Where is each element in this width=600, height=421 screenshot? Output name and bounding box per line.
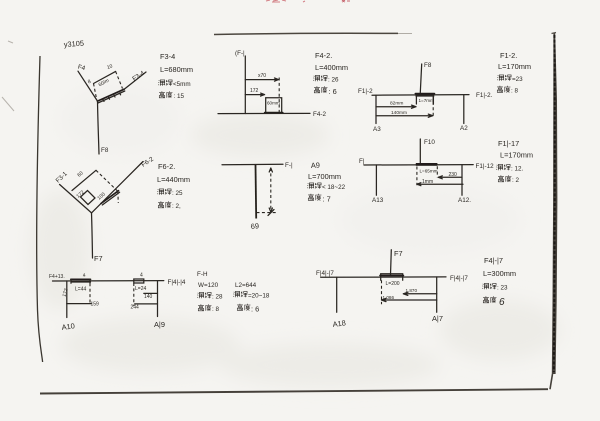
svg-text:A9: A9 [311, 161, 321, 170]
svg-text:F4+13.: F4+13. [49, 274, 65, 280]
svg-text:L=24: L=24 [135, 286, 146, 292]
svg-text:F1|-17: F1|-17 [498, 139, 519, 148]
svg-text:F|4|-|7: F|4|-|7 [316, 270, 334, 277]
svg-text:: 12.: : 12. [511, 166, 524, 173]
svg-text:F-|: F-| [285, 162, 293, 169]
svg-text:F|4|-|4: F|4|-|4 [168, 279, 186, 286]
svg-text:: 6: : 6 [329, 87, 337, 96]
svg-text:A2: A2 [460, 125, 468, 132]
svg-text:L=440mm: L=440mm [157, 175, 190, 184]
svg-text:F7: F7 [394, 249, 403, 258]
svg-text:: 25: : 25 [172, 190, 183, 197]
svg-text:: 15: : 15 [174, 93, 185, 100]
svg-text:F8: F8 [424, 62, 432, 69]
svg-text:L=170mm: L=170mm [498, 62, 531, 71]
svg-text:: 2: : 2 [512, 177, 519, 184]
svg-text:: 2,: : 2, [172, 203, 181, 210]
svg-text:140mm: 140mm [391, 110, 407, 116]
svg-text:L=400mm: L=400mm [315, 63, 348, 72]
svg-text:A18: A18 [332, 318, 346, 329]
svg-text:60mm: 60mm [267, 101, 280, 106]
svg-text:159: 159 [91, 302, 100, 308]
svg-text:F|: F| [359, 158, 365, 165]
svg-text:F-H: F-H [197, 271, 208, 278]
svg-text:1,086: 1,086 [383, 295, 395, 300]
svg-text:A10: A10 [61, 321, 75, 332]
svg-text:L=170mm: L=170mm [500, 151, 533, 160]
svg-text:69: 69 [250, 221, 259, 231]
svg-text:1mm: 1mm [422, 179, 433, 185]
svg-text:: 7: : 7 [323, 195, 331, 204]
svg-text:A12.: A12. [458, 197, 471, 204]
svg-text:y3105: y3105 [64, 39, 85, 49]
svg-text:F4-2: F4-2 [313, 111, 326, 118]
svg-text:L=300mm: L=300mm [483, 269, 516, 278]
svg-text:=23: =23 [512, 76, 523, 83]
svg-text:A3: A3 [373, 126, 381, 133]
svg-text:< 18~22: < 18~22 [322, 184, 346, 191]
svg-text:F1|-2.: F1|-2. [476, 92, 493, 99]
svg-text:F6-2.: F6-2. [158, 162, 175, 171]
svg-text:1=7mm: 1=7mm [419, 98, 435, 103]
svg-text:A|7: A|7 [432, 314, 443, 323]
svg-text:: 8: : 8 [511, 88, 518, 95]
svg-text:F|4|-|7: F|4|-|7 [450, 275, 468, 282]
svg-text:244: 244 [131, 305, 140, 311]
svg-text:140: 140 [144, 294, 153, 300]
svg-text:W=120: W=120 [198, 282, 219, 289]
svg-text:L=680mm: L=680mm [160, 65, 193, 74]
svg-text:F1|-12: F1|-12 [476, 163, 495, 170]
svg-text:(F-|: (F-| [235, 50, 245, 57]
svg-text:F10: F10 [424, 139, 435, 146]
svg-text:x70: x70 [258, 73, 266, 79]
svg-text:230: 230 [449, 172, 458, 178]
svg-text:L2=644: L2=644 [235, 282, 257, 289]
svg-text:F8: F8 [101, 147, 109, 154]
svg-text:L=200: L=200 [386, 281, 400, 287]
svg-text:1,870: 1,870 [406, 288, 418, 293]
svg-text:: 6: : 6 [251, 305, 259, 314]
svg-text:A|9: A|9 [154, 320, 165, 329]
svg-text:F1|-2: F1|-2 [358, 88, 373, 95]
svg-text:F4-2.: F4-2. [315, 51, 332, 60]
svg-text:L=65mm: L=65mm [420, 169, 438, 174]
svg-text:: 28: : 28 [212, 294, 223, 301]
svg-text:=20~18: =20~18 [248, 293, 270, 300]
svg-text:6: 6 [499, 297, 505, 308]
svg-text:F1-2.: F1-2. [500, 51, 517, 60]
svg-text:L=700mm: L=700mm [308, 172, 341, 181]
svg-text:82mm: 82mm [390, 101, 403, 107]
svg-text:A13: A13 [372, 197, 384, 204]
svg-text:172: 172 [250, 88, 259, 94]
svg-text:4: 4 [140, 273, 143, 279]
svg-text:F4|-|7: F4|-|7 [484, 256, 503, 265]
svg-text:L=44: L=44 [75, 287, 86, 293]
svg-text:F7: F7 [94, 254, 103, 263]
svg-text:F3-4: F3-4 [160, 52, 175, 61]
svg-text:: 23: : 23 [497, 285, 508, 292]
svg-text:: 26: : 26 [328, 77, 339, 84]
svg-text:: 8: : 8 [212, 306, 219, 313]
svg-text:<5mm: <5mm [173, 81, 191, 88]
